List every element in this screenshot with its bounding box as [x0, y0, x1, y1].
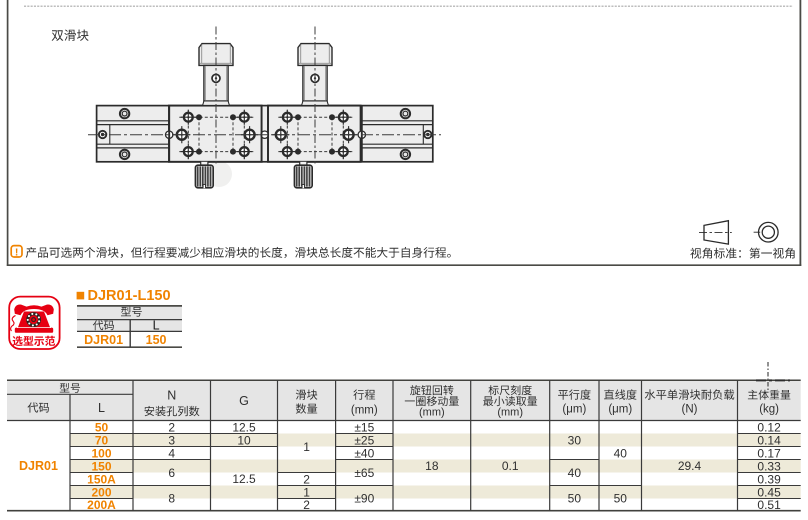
svg-text:4: 4: [168, 446, 175, 460]
svg-text:0.12: 0.12: [757, 420, 781, 434]
svg-text:±65: ±65: [354, 466, 374, 480]
svg-text:0.14: 0.14: [757, 433, 781, 447]
svg-text:12.5: 12.5: [232, 420, 256, 434]
svg-text:29.4: 29.4: [678, 459, 702, 473]
svg-text:(N): (N): [682, 403, 698, 415]
svg-text:12.5: 12.5: [232, 472, 256, 486]
svg-text:DJR01-L150: DJR01-L150: [88, 288, 171, 304]
svg-text:2: 2: [303, 472, 310, 486]
svg-text:(μm): (μm): [608, 403, 632, 415]
svg-text:1: 1: [303, 440, 310, 454]
svg-text:8: 8: [168, 492, 175, 506]
svg-text:(mm): (mm): [419, 406, 445, 418]
svg-text:!: !: [15, 246, 19, 258]
svg-text:(kg): (kg): [759, 403, 779, 415]
svg-text:N: N: [167, 388, 176, 402]
svg-text:±40: ±40: [354, 446, 374, 460]
svg-text:0.33: 0.33: [757, 459, 781, 473]
svg-text:50: 50: [568, 492, 582, 506]
svg-text:40: 40: [568, 466, 582, 480]
svg-text:±15: ±15: [354, 420, 374, 434]
svg-text:70: 70: [95, 433, 109, 447]
svg-text:(mm): (mm): [497, 406, 523, 418]
svg-text:50: 50: [95, 420, 109, 434]
svg-text:150A: 150A: [87, 472, 116, 486]
svg-text:G: G: [239, 394, 249, 408]
svg-text:3: 3: [168, 433, 175, 447]
svg-text:0.1: 0.1: [502, 459, 519, 473]
svg-text:30: 30: [568, 433, 582, 447]
svg-text:DJR01: DJR01: [84, 333, 123, 347]
svg-text:0.51: 0.51: [757, 498, 781, 512]
svg-text:L: L: [153, 319, 160, 333]
svg-text:(mm): (mm): [351, 405, 378, 417]
svg-text:18: 18: [425, 459, 439, 473]
svg-text:DJR01: DJR01: [19, 459, 58, 473]
svg-text:200A: 200A: [87, 498, 116, 512]
svg-text:100: 100: [91, 446, 111, 460]
svg-text:±25: ±25: [354, 433, 374, 447]
svg-text:50: 50: [614, 492, 628, 506]
svg-text:L: L: [98, 401, 105, 415]
svg-text:40: 40: [614, 446, 628, 460]
svg-text:0.17: 0.17: [757, 446, 781, 460]
svg-text:(μm): (μm): [562, 403, 586, 415]
svg-text:150: 150: [91, 459, 111, 473]
svg-text:2: 2: [303, 498, 310, 512]
svg-text:10: 10: [237, 433, 251, 447]
svg-text:±90: ±90: [354, 492, 374, 506]
svg-text:0.39: 0.39: [757, 472, 781, 486]
svg-text:150: 150: [146, 333, 167, 347]
svg-text:2: 2: [168, 420, 175, 434]
svg-text:6: 6: [168, 466, 175, 480]
